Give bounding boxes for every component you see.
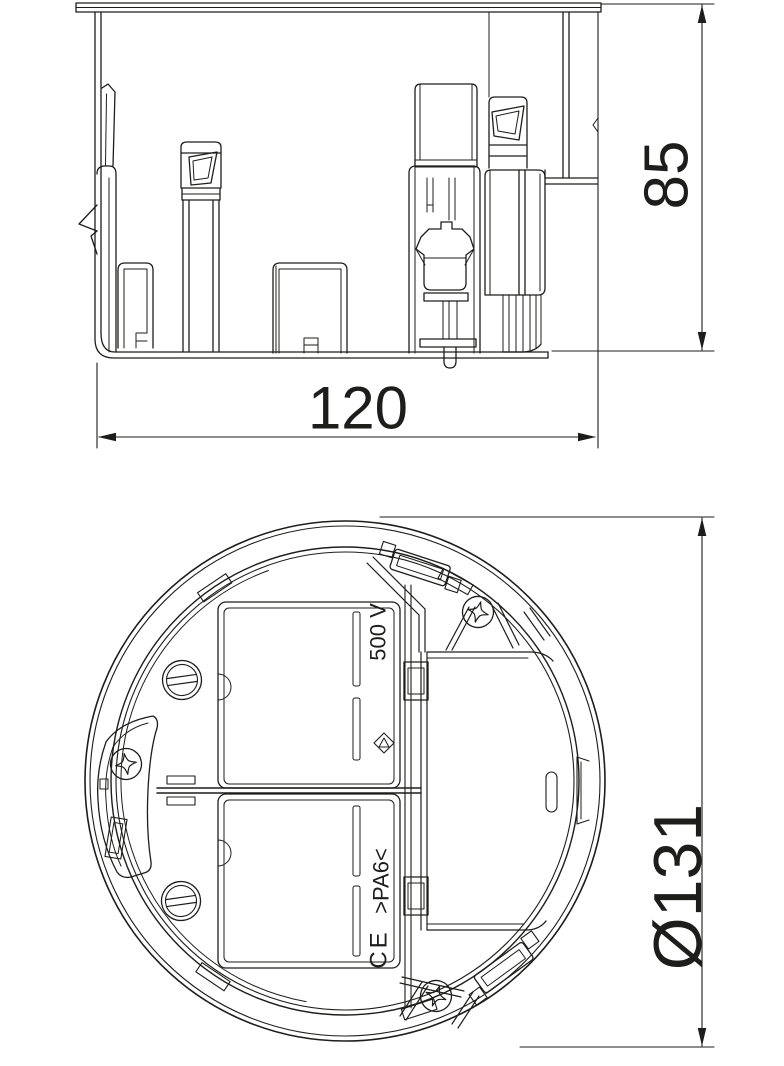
latch-column-right [489,12,527,168]
arrow-down-icon [698,1028,707,1046]
plan-view [85,517,714,1047]
material-diamond-icon [374,733,394,753]
right-wall [545,12,598,448]
center-divider [157,776,421,805]
arrow-down-icon [698,332,707,350]
arrow-up-icon [698,518,707,536]
arrow-right-icon [578,433,596,442]
arrow-left-icon [98,433,116,442]
clamp-assembly [409,166,480,368]
levelling-post [415,84,477,167]
left-wall-clip [79,84,116,352]
mounting-plate [421,652,589,930]
material-marking: >PA6< [369,848,394,914]
slotted-screw-icon [159,879,203,923]
latch-column-left [181,142,221,352]
latch-block-right [485,170,545,352]
flange [76,3,601,12]
dimension-diameter-label: Ø131 [640,804,716,970]
mounting-frame-left [118,263,153,348]
ce-marking: CE [366,929,393,968]
installation-box-drawing: 120 85 [0,0,784,1066]
dimension-width-label: 120 [308,375,408,442]
technical-drawing-page: 120 85 [0,0,784,1066]
dimension-height-label: 85 [633,141,702,210]
plate-slot [546,772,557,812]
slotted-screw-icon [160,658,204,702]
arrow-up-icon [698,5,707,23]
mounting-frame-center [273,263,347,353]
retaining-latch-bottom [400,931,548,1028]
voltage-marking: 500 V [366,603,391,661]
